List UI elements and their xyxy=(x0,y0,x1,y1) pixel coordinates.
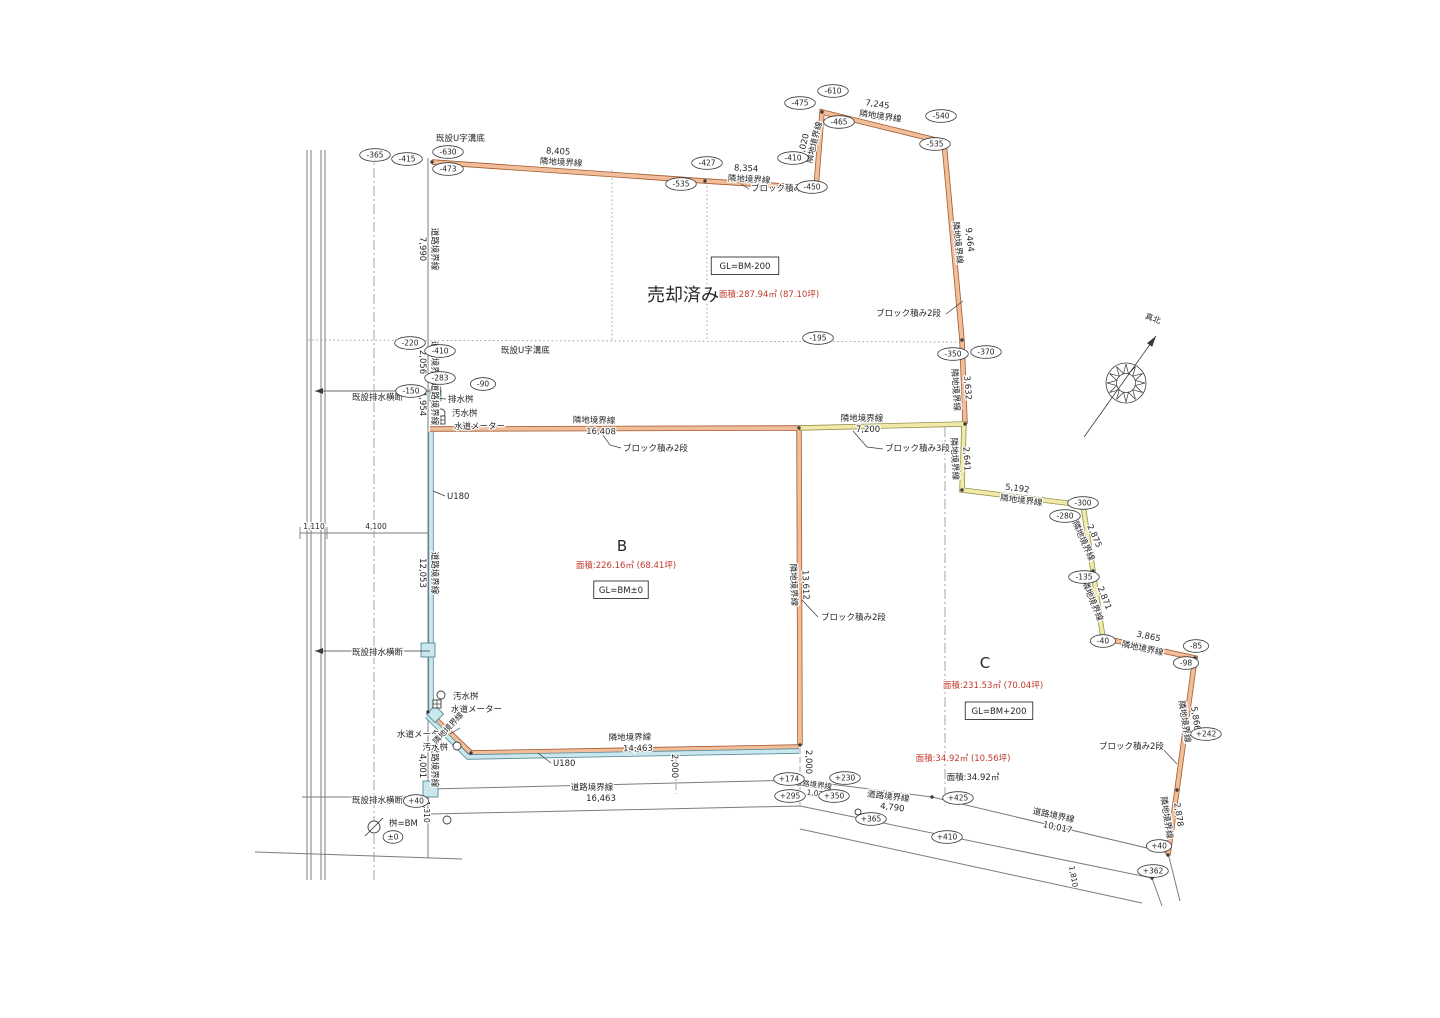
elevation-label: +295 xyxy=(780,792,801,801)
annotation-text: 既設U字溝底 xyxy=(501,345,550,356)
dimension-text: 8,354 xyxy=(734,163,759,174)
north-arrow-icon xyxy=(1147,336,1156,347)
north-axis-line xyxy=(1084,336,1156,437)
boundary-point xyxy=(960,338,963,341)
elevation-label: -283 xyxy=(431,374,448,383)
leader-line xyxy=(433,491,445,496)
road-line xyxy=(255,852,462,859)
elevation-label: -350 xyxy=(944,350,961,359)
dimension-text: 2,000 xyxy=(669,754,679,778)
boundary-point xyxy=(1175,788,1178,791)
dimension-text: 4,790 xyxy=(880,802,905,815)
site-plan-drawing: 既設U字溝底8,405隣地境界線8,354隣地境界線ブロック積み2段3,020隣… xyxy=(0,0,1440,1018)
elevation-label: -195 xyxy=(809,334,826,343)
gl-level-label: GL=BM-200 xyxy=(720,262,771,272)
block-wall-note: ブロック積み2段 xyxy=(821,612,886,623)
elevation-label: -450 xyxy=(803,183,820,192)
dimension-text: 1,810 xyxy=(1067,865,1080,888)
elevation-label: -415 xyxy=(398,155,415,164)
elevation-label: -427 xyxy=(698,159,715,168)
dimension-text: 9,464 xyxy=(963,227,975,252)
dimension-text: 16,463 xyxy=(586,794,616,804)
elevation-label: -475 xyxy=(791,99,808,108)
elevation-label: -85 xyxy=(1190,642,1202,651)
boundary-label: 隣地境界線 xyxy=(787,563,799,606)
parcel-b-label: B xyxy=(617,537,627,555)
drain-crossing-arrow xyxy=(315,648,323,654)
drain-crossing-arrow xyxy=(315,388,323,394)
annotation-text: U180 xyxy=(447,492,469,502)
boundary-label: 隣地境界線 xyxy=(841,413,884,424)
parcel-sold-area: 面積:287.94㎡ (87.10坪) xyxy=(719,289,819,300)
elevation-label: -610 xyxy=(824,87,841,96)
boundary-point xyxy=(798,743,801,746)
elevation-label: -280 xyxy=(1056,512,1073,521)
strip-area-black: 面積:34.92㎡ xyxy=(947,772,1000,783)
boundary-label: 隣地境界線 xyxy=(540,156,584,169)
north-label: 真北 xyxy=(1144,311,1162,326)
elevation-label: +350 xyxy=(824,792,845,801)
elevation-label: -220 xyxy=(401,339,418,348)
boundary-point xyxy=(960,488,963,491)
annotation-text: 水道メーター xyxy=(454,421,505,432)
elevation-label: -535 xyxy=(926,140,943,149)
boundary-label: 隣地境界線 xyxy=(949,368,963,412)
elevation-label: -473 xyxy=(439,165,456,174)
annotation-text: U180 xyxy=(553,759,575,769)
dimension-text: 7,990 xyxy=(417,237,427,261)
block-wall-note: ブロック積み2段 xyxy=(623,443,688,454)
strip-area-red: 面積:34.92㎡ (10.56坪) xyxy=(916,753,1011,764)
dimension-text: 8,405 xyxy=(546,146,571,157)
dimension-text: 2,641 xyxy=(960,446,971,471)
elevation-label: -150 xyxy=(402,387,419,396)
annotation-text: 既設排水横断 xyxy=(352,795,404,806)
boundary-point xyxy=(703,179,706,182)
parcel-c-label: C xyxy=(980,654,990,672)
dimension-text: 16,408 xyxy=(586,427,616,438)
elevation-label: +40 xyxy=(408,797,424,806)
elevation-label: -40 xyxy=(1097,637,1109,646)
leader-line xyxy=(802,600,818,617)
elevation-label: -535 xyxy=(672,180,689,189)
annotation-text: 汚水桝 xyxy=(452,408,478,419)
dimension-text: 2,000 xyxy=(803,750,813,774)
elevation-label: -630 xyxy=(439,148,456,157)
dimension-text: 14,463 xyxy=(623,744,653,755)
boundary-label: 道路境界線 xyxy=(429,383,440,426)
boundary-point xyxy=(797,426,800,429)
block-wall-note: ブロック積み2段 xyxy=(1099,741,1164,752)
elevation-label: -370 xyxy=(977,348,994,357)
catch-basin xyxy=(421,643,435,657)
parcel-c-area: 面積:231.53㎡ (70.04坪) xyxy=(943,680,1043,691)
boundary-point xyxy=(930,795,933,798)
elevation-label: -300 xyxy=(1074,499,1091,508)
annotation-text: 排水桝 xyxy=(448,394,474,405)
elevation-label: +425 xyxy=(948,794,969,803)
elevation-label: -540 xyxy=(932,112,949,121)
site-plan-svg: 既設U字溝底8,405隣地境界線8,354隣地境界線ブロック積み2段3,020隣… xyxy=(0,0,1440,1018)
boundary-label: 隣地境界線 xyxy=(573,415,616,427)
annotation-text: 既設U字溝底 xyxy=(436,133,485,144)
elevation-label: ±0 xyxy=(387,833,398,842)
road-line xyxy=(800,829,1142,903)
boundary-point xyxy=(1166,853,1169,856)
elevation-label: -410 xyxy=(784,154,801,163)
dimension-text: 4,001 xyxy=(417,754,427,778)
manhole-icon xyxy=(437,691,445,699)
annotation-text: 既設排水横断 xyxy=(352,647,404,658)
elevation-label: +242 xyxy=(1196,730,1217,739)
dimension-text: 7,200 xyxy=(856,425,880,435)
gl-level-label: GL=BM+200 xyxy=(972,707,1027,717)
elevation-label: +174 xyxy=(779,775,800,784)
boundary-point xyxy=(426,710,429,713)
elevation-label: -90 xyxy=(477,380,489,389)
boundary-point xyxy=(963,422,966,425)
road-line xyxy=(430,780,798,789)
elevation-label: +410 xyxy=(937,833,958,842)
dimension-text: 13,612 xyxy=(799,570,810,600)
boundary-label: 道路境界線 xyxy=(429,552,440,595)
parcel-b-area: 面積:226.16㎡ (68.41坪) xyxy=(576,560,676,571)
boundary-point xyxy=(820,110,823,113)
elevation-label: -410 xyxy=(431,347,448,356)
elevation-label: -365 xyxy=(366,151,383,160)
gl-level-label: GL=BM±0 xyxy=(599,586,643,596)
compass-rose-icon xyxy=(1106,363,1146,403)
boundary-label: 道路境界線 xyxy=(429,228,440,271)
dimension-text: 4,100 xyxy=(365,522,387,531)
annotation-text: 既設排水横断 xyxy=(352,392,404,403)
dimension-text: 3,632 xyxy=(961,375,973,400)
elevation-label: +362 xyxy=(1143,867,1164,876)
dimension-text: 12,053 xyxy=(417,558,427,588)
elevation-label: -98 xyxy=(1180,659,1192,668)
elevation-label: +230 xyxy=(835,774,856,783)
annotation-text: 汚水桝 xyxy=(453,691,479,702)
parcel-sold-label: 売却済み xyxy=(647,285,719,306)
boundary-point xyxy=(430,160,433,163)
block-wall-note: ブロック積み2段 xyxy=(876,308,941,319)
elevation-label: +40 xyxy=(1151,842,1167,851)
elevation-label: -465 xyxy=(830,118,847,127)
boundary-label: 隣地境界線 xyxy=(948,437,961,481)
boundary-point xyxy=(469,751,472,754)
boundary-label: 道路境界線 xyxy=(571,782,614,793)
annotation-text: 桝=BM xyxy=(389,818,418,829)
dimension-text: 3,865 xyxy=(1135,630,1161,645)
manhole-icon xyxy=(453,742,461,750)
elevation-label: -135 xyxy=(1075,573,1092,582)
elevation-label: +365 xyxy=(861,815,882,824)
manhole-icon xyxy=(443,816,451,824)
block-wall-note: ブロック積み3段 xyxy=(885,443,950,454)
boundary-label: 隣地境界線 xyxy=(609,732,652,744)
dimension-text: 1,110 xyxy=(303,522,325,531)
